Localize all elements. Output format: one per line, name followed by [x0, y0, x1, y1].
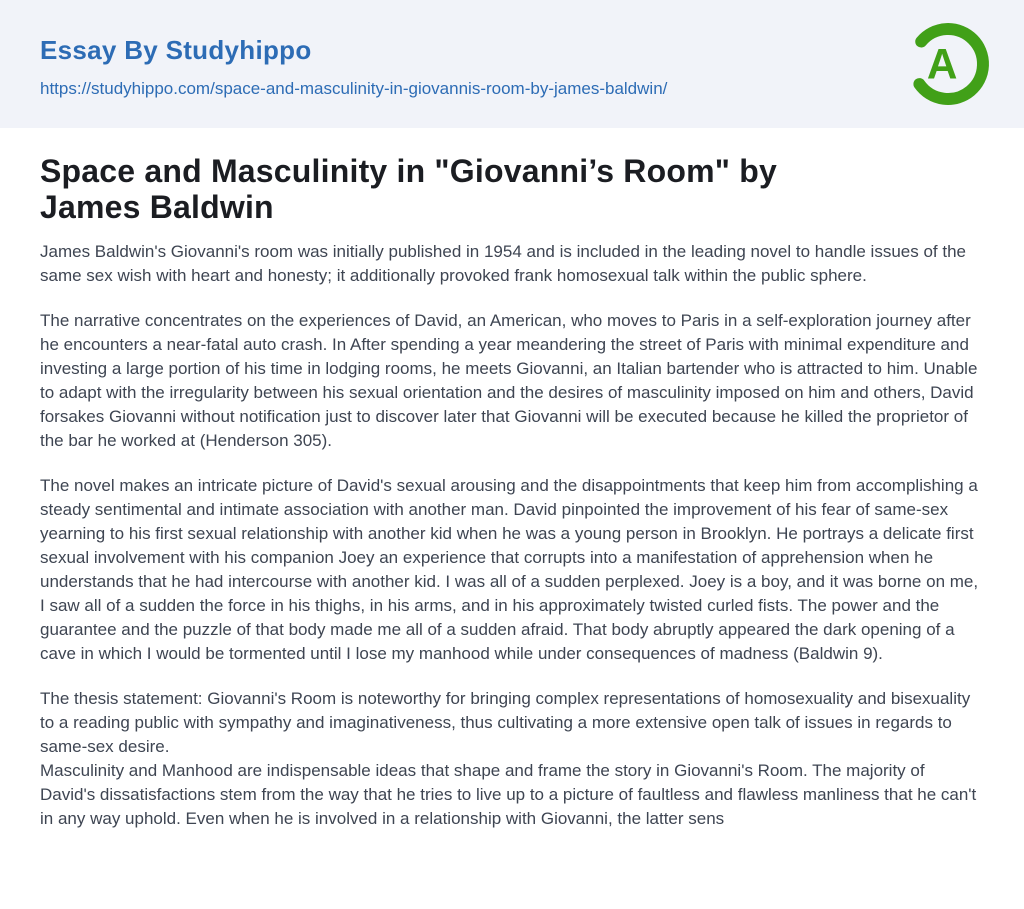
- studyhippo-a-logo-icon: A: [902, 18, 994, 110]
- essay-content: Space and Masculinity in "Giovanni’s Roo…: [0, 153, 1024, 831]
- brand-title: Essay By Studyhippo: [40, 35, 667, 66]
- logo-letter-a: A: [927, 41, 958, 88]
- essay-paragraph-4: The thesis statement: Giovanni's Room is…: [40, 687, 984, 831]
- essay-paragraph-2: The narrative concentrates on the experi…: [40, 309, 984, 453]
- page-header: Essay By Studyhippo https://studyhippo.c…: [0, 0, 1024, 128]
- essay-paragraph-1: James Baldwin's Giovanni's room was init…: [40, 240, 984, 288]
- essay-title: Space and Masculinity in "Giovanni’s Roo…: [40, 153, 984, 225]
- header-text-block: Essay By Studyhippo https://studyhippo.c…: [40, 29, 667, 99]
- source-url-link[interactable]: https://studyhippo.com/space-and-masculi…: [40, 79, 667, 99]
- essay-paragraph-3: The novel makes an intricate picture of …: [40, 474, 984, 666]
